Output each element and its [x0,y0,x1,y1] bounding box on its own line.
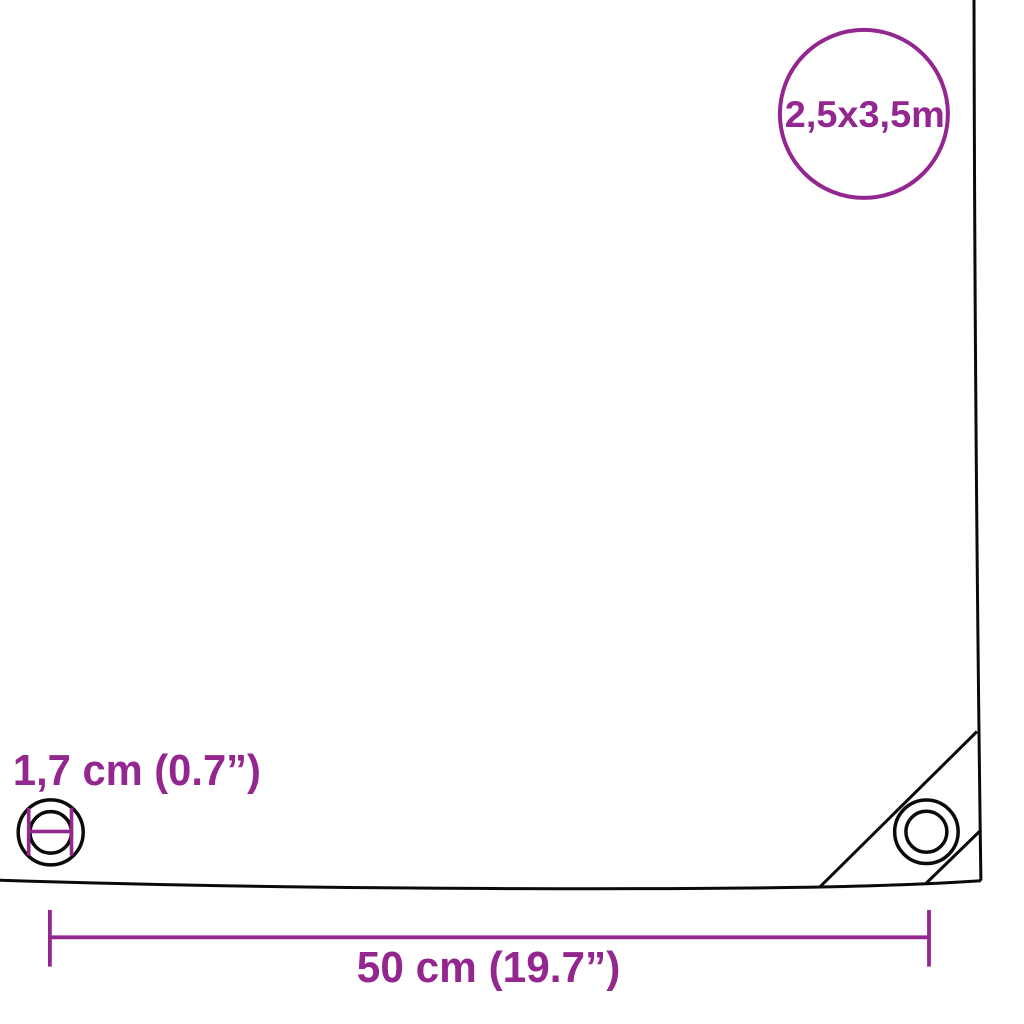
svg-text:50 cm (19.7”): 50 cm (19.7”) [357,944,621,992]
svg-text:2,5x3,5m: 2,5x3,5m [785,93,945,135]
svg-text:1,7 cm (0.7”): 1,7 cm (0.7”) [13,747,261,795]
